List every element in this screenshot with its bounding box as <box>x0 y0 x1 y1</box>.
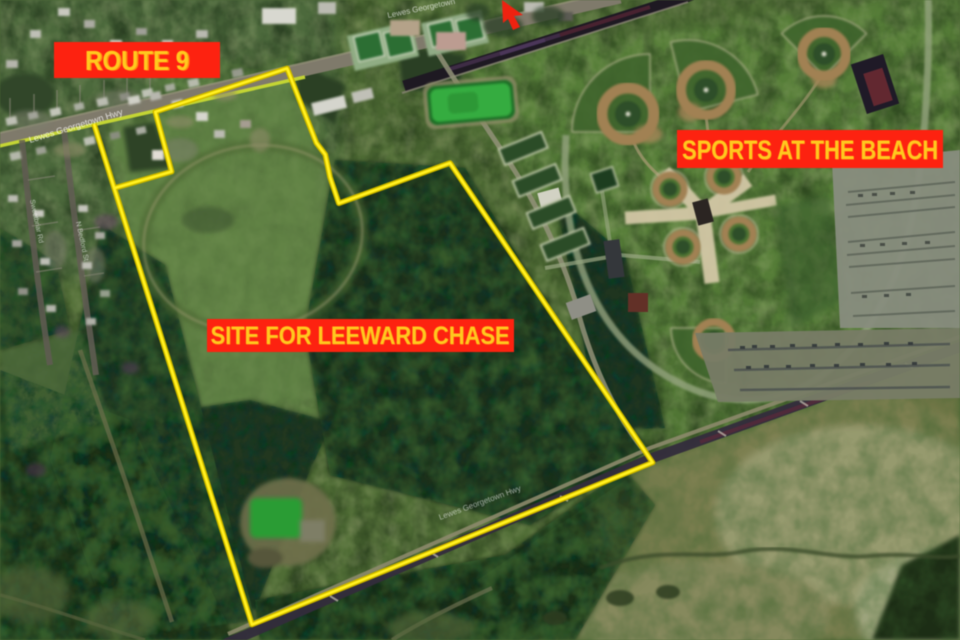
svg-text:SITE FOR LEEWARD CHASE: SITE FOR LEEWARD CHASE <box>211 322 510 350</box>
svg-text:ROUTE 9: ROUTE 9 <box>85 45 189 76</box>
svg-text:SPORTS AT THE BEACH: SPORTS AT THE BEACH <box>682 135 938 165</box>
